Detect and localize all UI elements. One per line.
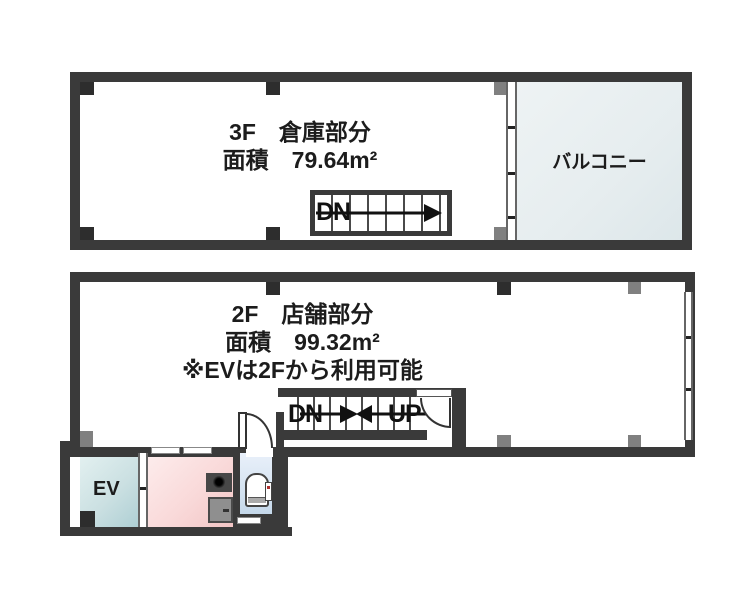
toilet-bottom-door <box>237 517 261 524</box>
pillar <box>497 435 511 447</box>
balcony-window <box>506 82 517 240</box>
sink-handle-icon <box>223 509 229 512</box>
f3-left-wall <box>70 72 80 250</box>
pillar <box>80 431 93 447</box>
window-tick <box>508 216 515 219</box>
window-tick <box>686 388 691 391</box>
annex-left-wall <box>60 441 70 536</box>
toilet-flush-unit-icon <box>265 482 272 501</box>
floorplan-canvas: バルコニー 3F 倉庫部分 面積 79.64m² DN <box>0 0 740 600</box>
f3-top-wall <box>70 72 692 82</box>
window-tick <box>686 336 691 339</box>
toilet-door-opening <box>246 447 273 457</box>
annex-sliding-door <box>138 453 148 527</box>
pillar <box>80 227 94 240</box>
f2-left-wall <box>70 272 80 457</box>
door-tick <box>140 487 146 490</box>
pillar <box>80 82 94 95</box>
f2-title: 2F 店舗部分 <box>135 300 470 328</box>
window-tick <box>508 126 515 129</box>
annex-right-wall <box>272 449 288 536</box>
f2-stair-right-wall <box>452 388 466 447</box>
balcony-label: バルコニー <box>517 147 682 174</box>
f2-stair-bottom-wall <box>277 430 427 440</box>
f2-stair-down-arrow-icon <box>300 404 360 424</box>
sink-unit-icon <box>208 497 233 523</box>
f2-right-window <box>684 292 693 440</box>
pillar <box>497 282 511 295</box>
pillar <box>628 282 641 294</box>
f3-bottom-wall <box>70 240 692 250</box>
pillar <box>266 82 280 95</box>
pillar <box>266 227 280 240</box>
burner-icon <box>213 476 225 488</box>
pillar <box>80 511 95 527</box>
annex-bottom-wall <box>60 527 292 536</box>
f3-area: 面積 79.64m² <box>150 146 450 174</box>
flush-button-icon <box>267 486 270 489</box>
f2-area: 面積 99.32m² <box>135 328 470 356</box>
f2-stair-left-wall <box>276 412 284 447</box>
kitchen-toilet-wall <box>233 453 240 527</box>
kitchen-window <box>183 447 212 454</box>
f3-right-wall <box>682 72 692 250</box>
f3-title: 3F 倉庫部分 <box>150 118 450 146</box>
pillar <box>494 82 506 95</box>
f3-stair-direction-arrow-icon <box>314 202 446 224</box>
window-tick <box>508 172 515 175</box>
pillar <box>266 282 280 295</box>
pillar <box>494 227 506 240</box>
f2-stair-door-opening <box>416 389 452 397</box>
elevator-label: EV <box>93 478 120 501</box>
toilet-door-arc <box>246 413 273 448</box>
kitchen-window <box>151 447 180 454</box>
toilet-door-leaf <box>238 412 247 449</box>
toilet-seat-band <box>248 497 266 503</box>
pillar <box>628 435 641 447</box>
f2-top-wall <box>70 272 695 282</box>
stove-icon <box>206 473 232 492</box>
f2-ev-note: ※EVは2Fから利用可能 <box>135 356 470 384</box>
